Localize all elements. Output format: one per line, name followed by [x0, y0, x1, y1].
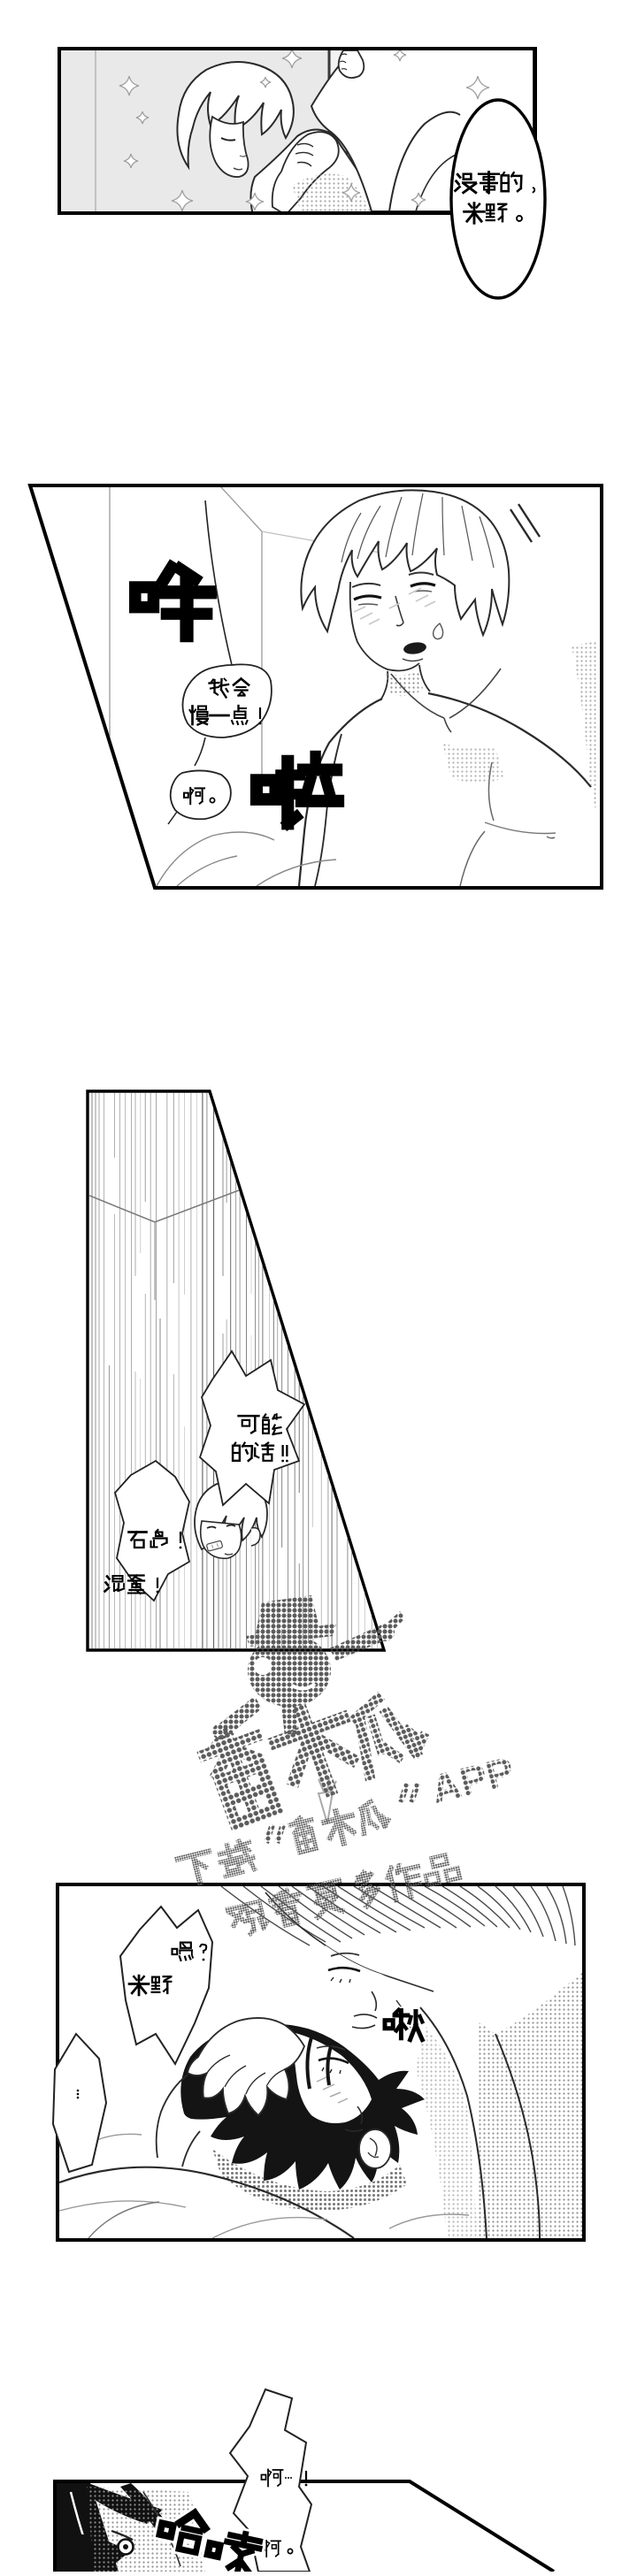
svg-text:APP: APP [426, 1747, 518, 1812]
